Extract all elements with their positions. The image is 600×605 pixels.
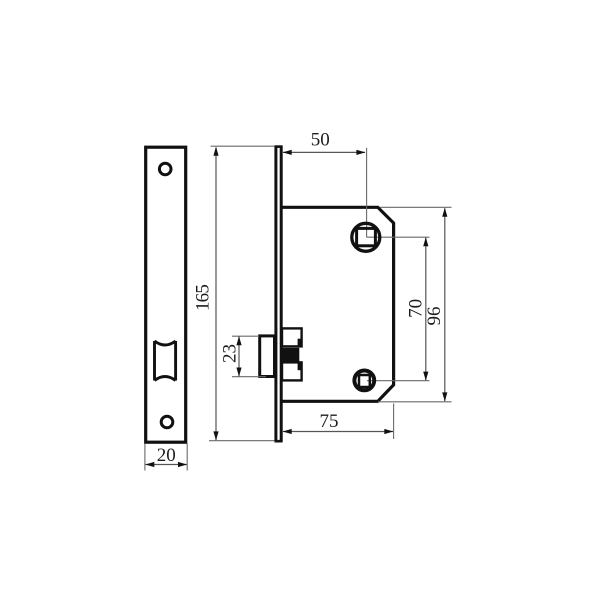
svg-text:23: 23 — [219, 344, 240, 363]
svg-text:96: 96 — [424, 307, 445, 326]
svg-text:50: 50 — [311, 130, 330, 151]
svg-text:165: 165 — [193, 285, 214, 311]
svg-text:20: 20 — [157, 445, 176, 466]
svg-text:75: 75 — [320, 411, 339, 432]
